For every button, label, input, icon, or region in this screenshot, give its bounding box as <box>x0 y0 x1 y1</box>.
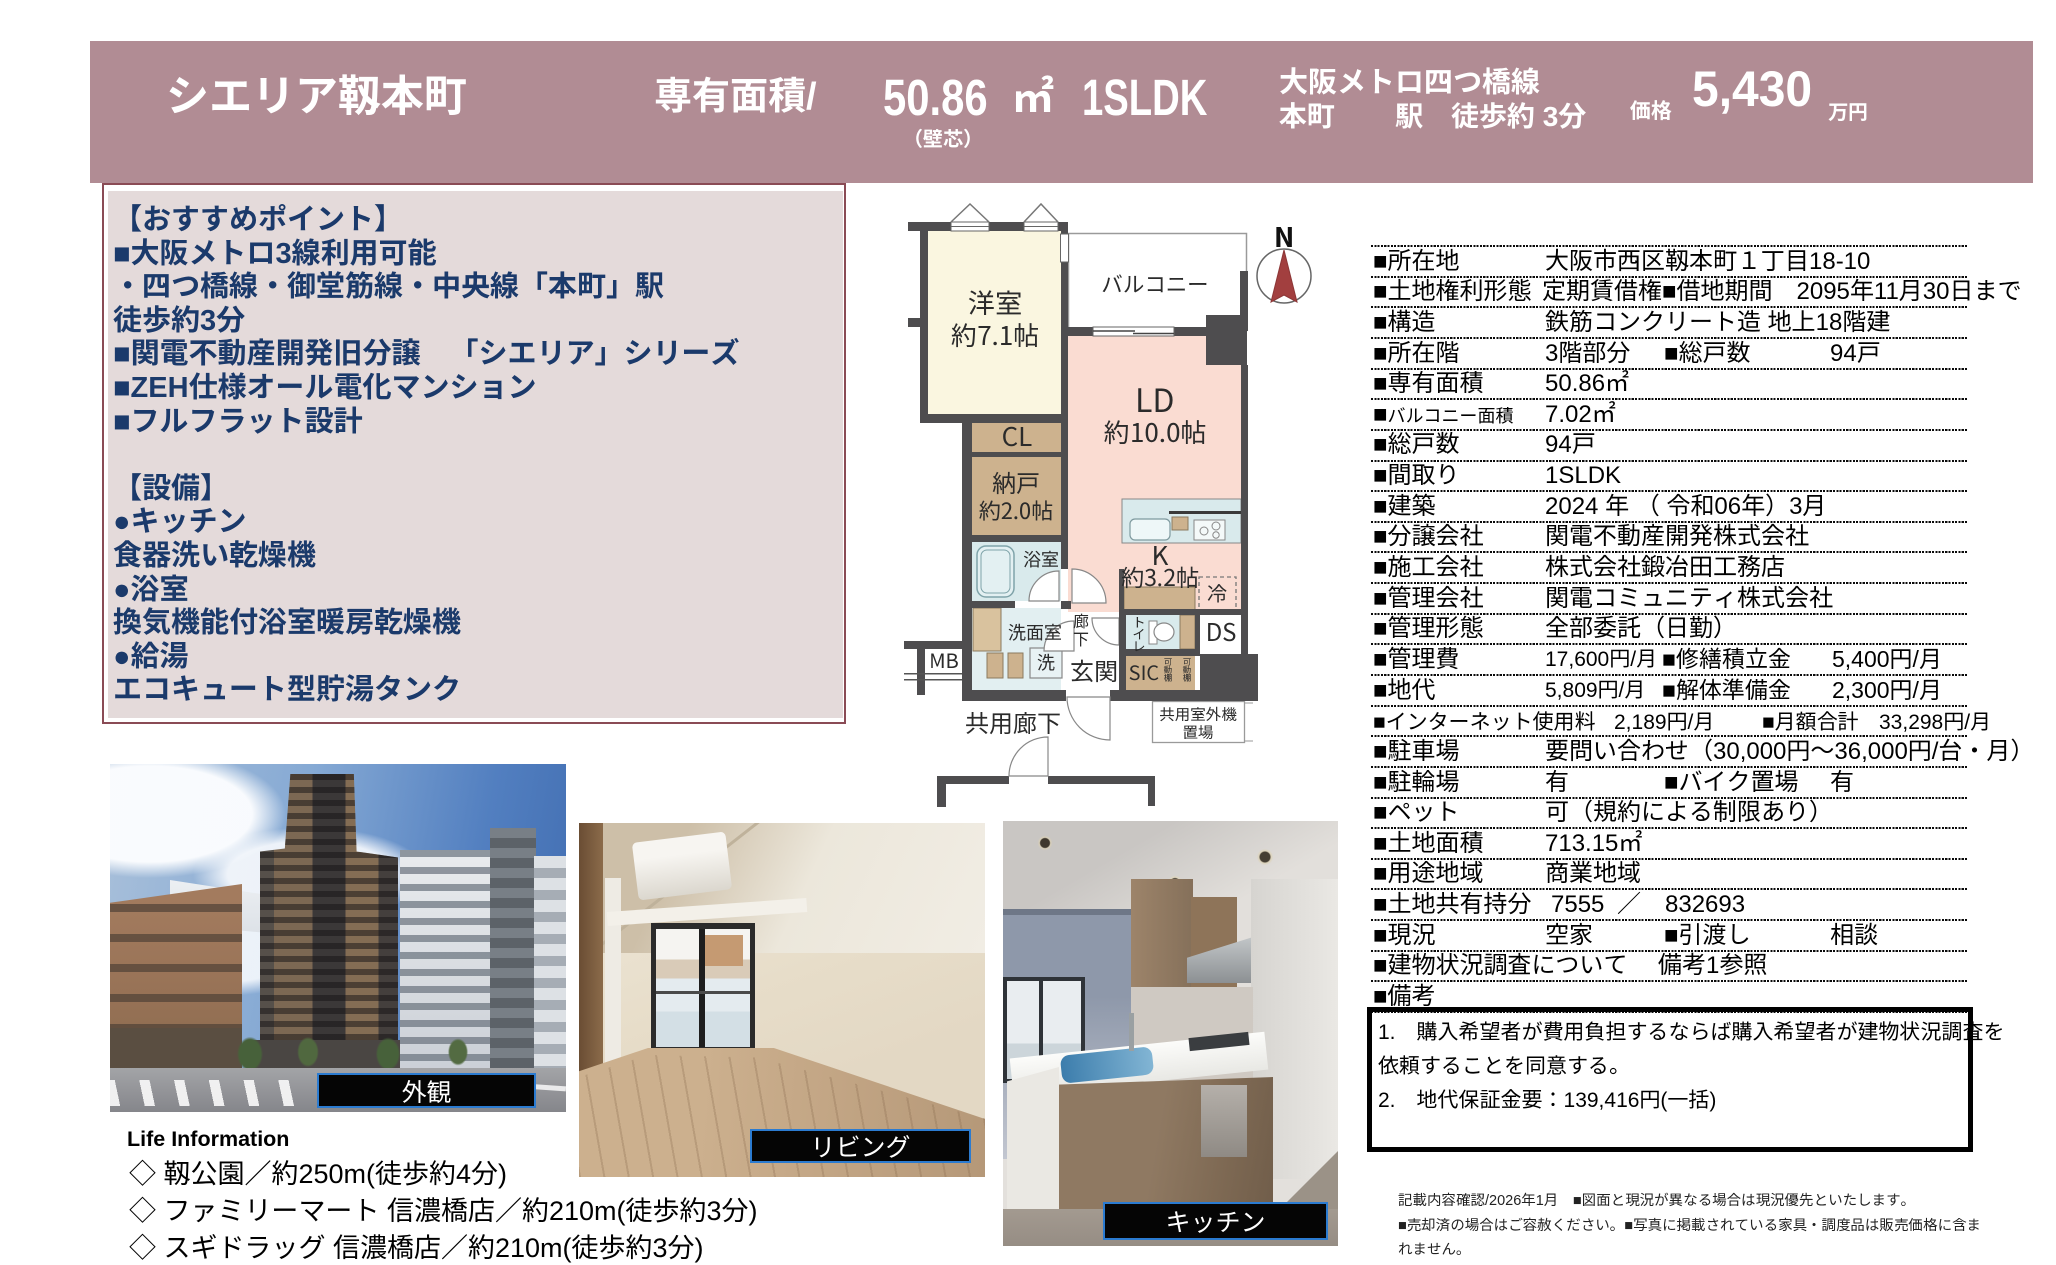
svg-text:約10.0帖: 約10.0帖 <box>1104 413 1207 450</box>
svg-text:DS: DS <box>1206 613 1237 648</box>
svg-text:約3.2帖: 約3.2帖 <box>1121 559 1199 593</box>
svg-text:N: N <box>1274 216 1294 255</box>
svg-text:約2.0帖: 約2.0帖 <box>979 494 1054 526</box>
svg-text:棚: 棚 <box>1164 672 1173 684</box>
svg-text:CL: CL <box>1002 417 1033 454</box>
svg-text:冷: 冷 <box>1207 578 1227 607</box>
svg-text:SIC: SIC <box>1129 657 1160 686</box>
svg-text:約7.1帖: 約7.1帖 <box>951 316 1039 353</box>
svg-text:棚: 棚 <box>1183 672 1192 684</box>
svg-text:洗: 洗 <box>1037 649 1055 675</box>
svg-text:玄関: 玄関 <box>1070 652 1118 687</box>
svg-text:MB: MB <box>929 645 958 674</box>
svg-text:下: 下 <box>1073 626 1089 650</box>
svg-text:置場: 置場 <box>1182 721 1213 743</box>
svg-text:浴室: 浴室 <box>1023 546 1059 572</box>
svg-text:洗面室: 洗面室 <box>1008 619 1062 645</box>
svg-text:レ: レ <box>1132 636 1145 655</box>
svg-text:共用廊下: 共用廊下 <box>965 704 1061 739</box>
svg-text:バルコニー: バルコニー <box>1101 268 1209 299</box>
